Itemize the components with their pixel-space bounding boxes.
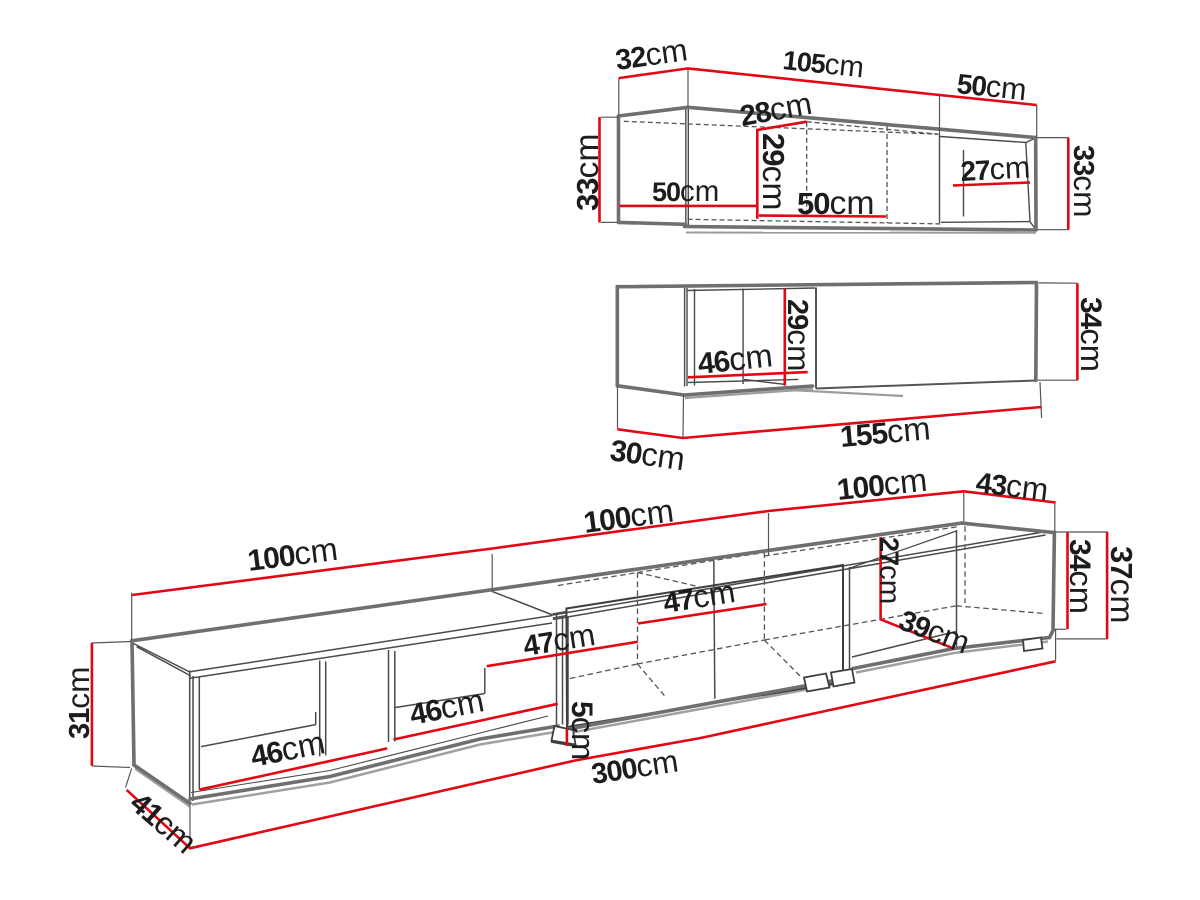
svg-text:50cm: 50cm — [652, 175, 719, 208]
svg-text:34cm: 34cm — [1074, 297, 1111, 372]
svg-text:37cm: 37cm — [1103, 546, 1141, 624]
svg-text:27cm: 27cm — [960, 150, 1032, 188]
svg-text:33cm: 33cm — [1067, 145, 1103, 217]
svg-text:29cm: 29cm — [755, 133, 793, 211]
svg-text:27cm: 27cm — [873, 537, 906, 604]
svg-text:50cm: 50cm — [797, 184, 875, 222]
svg-text:29cm: 29cm — [781, 299, 817, 371]
svg-text:34cm: 34cm — [1063, 539, 1100, 614]
svg-text:31cm: 31cm — [60, 667, 96, 739]
svg-text:33cm: 33cm — [568, 133, 606, 211]
svg-text:5cm: 5cm — [565, 701, 602, 760]
